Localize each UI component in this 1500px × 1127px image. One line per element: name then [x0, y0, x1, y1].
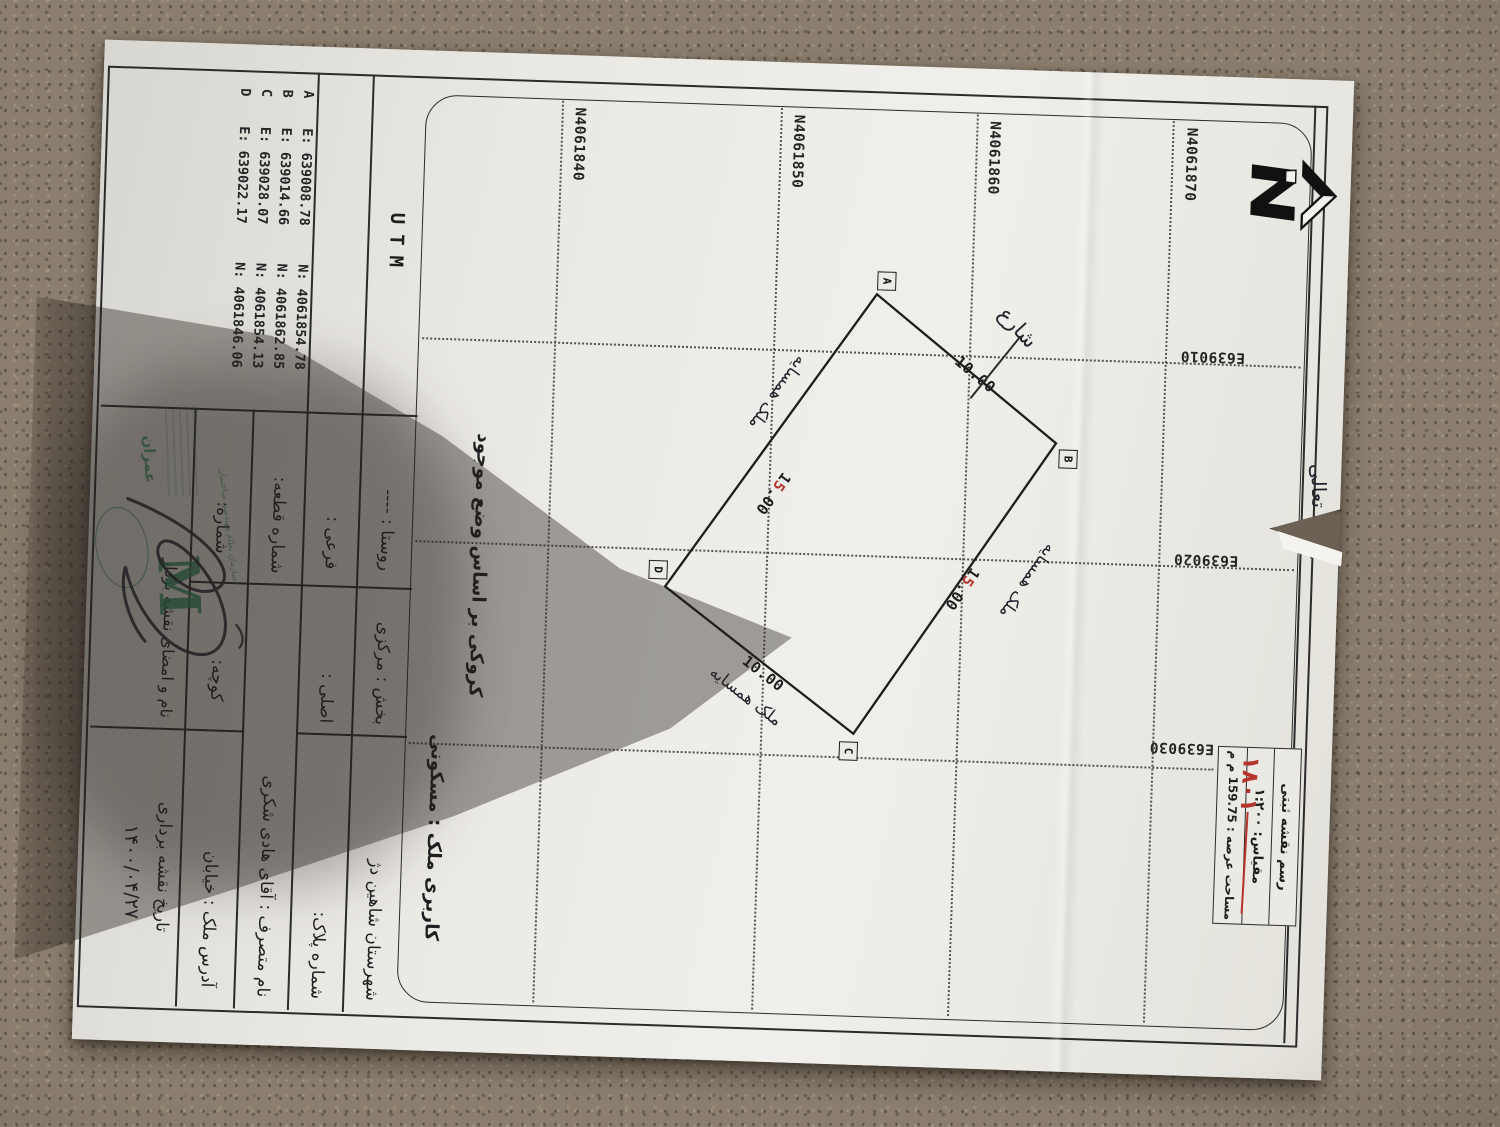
survey-document: بسمه تعالی رسم نقشه ثبتی مقیاس: ۱:۲۰۰ مس…: [72, 40, 1354, 1081]
utm-point-id: A: [300, 90, 316, 99]
corner-marker-d: D: [648, 560, 668, 580]
corner-letter: A: [880, 278, 893, 285]
utm-point-n: N: 4061854.78: [291, 264, 310, 370]
field-sub-number: فرعی :: [303, 412, 364, 587]
survey-date-value: ۱۴۰۰/۰۴/۲۷: [120, 767, 142, 977]
corner-letter: C: [842, 748, 855, 755]
utm-point-e: E: 639014.66: [275, 127, 294, 225]
paper-sheet: بسمه تعالی رسم نقشه ثبتی مقیاس: ۱:۲۰۰ مس…: [72, 40, 1354, 1081]
corner-letter: B: [1061, 456, 1074, 463]
utm-point-e: E: 639028.07: [254, 127, 273, 225]
utm-point-n: N: 4061862.85: [270, 263, 289, 369]
field-main-number: اصلی :: [298, 584, 358, 734]
field-district: بخش : مرکزی: [353, 586, 412, 736]
corner-marker-b: B: [1058, 449, 1078, 469]
field-village: روستا : ----: [358, 413, 418, 588]
utm-point-id: C: [258, 89, 274, 98]
photo-scene: بسمه تعالی رسم نقشه ثبتی مقیاس: ۱:۲۰۰ مس…: [0, 0, 1500, 1127]
plot-outline: [382, 50, 1355, 1081]
surveyor-signature: [96, 470, 259, 710]
utm-point-e: E: 639022.17: [233, 126, 252, 224]
utm-point-row: A E: 639008.78 N: 4061854.78: [306, 73, 317, 412]
field-city: شهرستان شاهین دژ: [344, 734, 407, 1014]
corner-marker-c: C: [838, 741, 858, 761]
corner-marker-a: A: [877, 271, 897, 291]
utm-point-id: D: [237, 88, 253, 97]
corner-letter: D: [652, 566, 665, 573]
field-plate-number: شماره پلاک:: [289, 732, 353, 1012]
utm-point-n: N: 4061846.06: [228, 262, 247, 368]
utm-table: A E: 639008.78 N: 4061854.78 B E: 639014…: [101, 66, 429, 415]
field-address: آدرس ملک : خیابان: [177, 729, 244, 1009]
field-parcel-number: شماره قطعه:: [249, 410, 309, 585]
utm-point-e: E: 639008.78: [296, 128, 315, 226]
utm-point-id: B: [279, 89, 295, 98]
field-survey-date-label: تاریخ نقشه برداری: [149, 728, 178, 1007]
utm-point-n: N: 4061854.13: [249, 263, 268, 369]
